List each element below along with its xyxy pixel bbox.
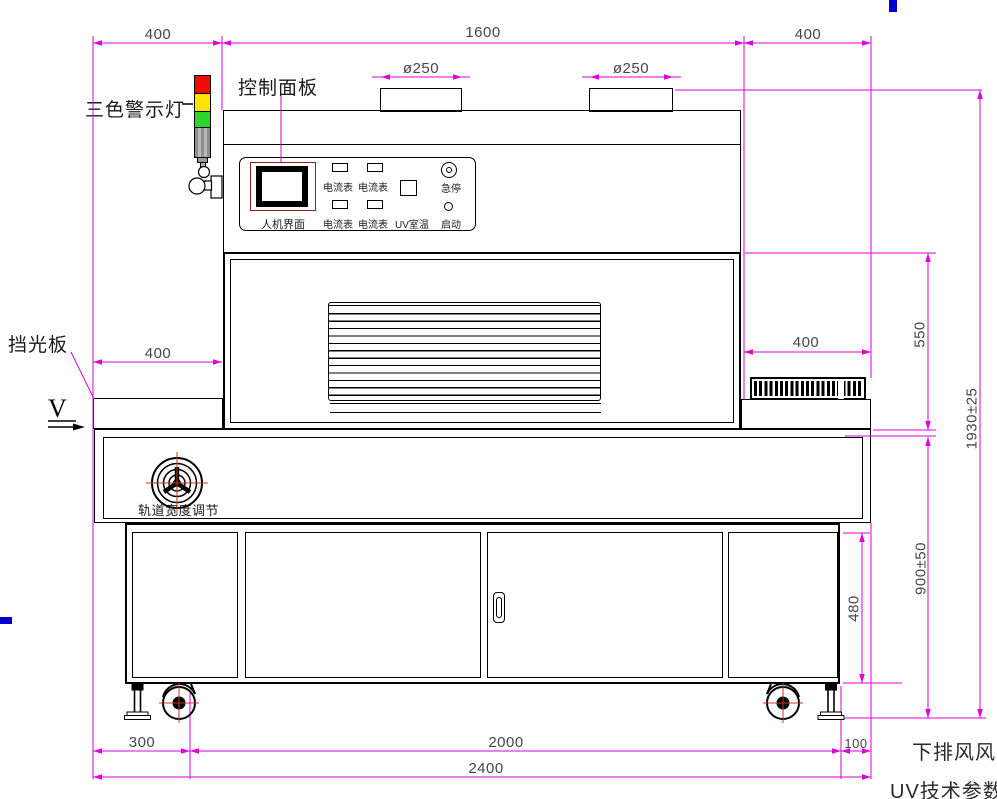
- hmi-screen[interactable]: [256, 166, 308, 207]
- louver-underline-1: [330, 403, 601, 404]
- caster-left: [159, 683, 199, 723]
- uv-temp-display: [400, 180, 417, 196]
- hmi-label: 人机界面: [250, 216, 316, 232]
- blue-mark-left: [0, 617, 12, 624]
- cabinet-door-left: [245, 532, 481, 678]
- ammeter-4: [367, 200, 383, 209]
- estop-label: 急停: [441, 180, 461, 195]
- ammeter-1: [332, 163, 348, 172]
- dim-height-1930: 1930±25: [964, 384, 981, 454]
- dim-bottom-300: 300: [122, 734, 162, 751]
- dim-top-right-400: 400: [788, 26, 828, 43]
- estop-button-inner: [446, 167, 452, 173]
- ammeter-label-1: 电流表: [323, 179, 353, 194]
- ammeter-label-4: 电流表: [358, 216, 388, 231]
- dim-top-left-400: 400: [138, 26, 178, 43]
- dim-cabinet-480: 480: [846, 589, 863, 629]
- dim-duct-right-250: ø250: [605, 60, 657, 77]
- ammeter-2: [367, 163, 383, 172]
- view-arrow-head: [73, 424, 85, 431]
- ammeter-label-2: 电流表: [358, 179, 388, 194]
- warning-light-base: [194, 127, 211, 158]
- louver-underline-2: [330, 412, 601, 413]
- blue-mark-top: [889, 0, 897, 12]
- caster-right: [763, 683, 803, 723]
- warning-light-red: [194, 75, 211, 94]
- cabinet-door-right: [487, 532, 723, 678]
- warning-light-yellow: [194, 93, 211, 112]
- warning-light-label: 三色警示灯: [85, 95, 185, 122]
- leveling-foot-left: [125, 684, 151, 720]
- light-shield-label: 挡光板: [8, 330, 68, 357]
- start-button[interactable]: [444, 202, 453, 211]
- cabinet-panel-right: [728, 532, 838, 678]
- exhaust-duct-right: [589, 88, 673, 112]
- light-shield-left: [93, 398, 223, 429]
- view-direction-marker: V: [48, 394, 67, 424]
- control-panel-label: 控制面板: [238, 73, 318, 100]
- dim-mid-left-400: 400: [138, 345, 178, 362]
- leveling-foot-right: [818, 684, 844, 720]
- track-width-adjust-label: 轨道宽度调节: [138, 500, 219, 519]
- ammeter-3: [332, 200, 348, 209]
- dim-height-900: 900±50: [913, 539, 930, 599]
- note-uv-parameters: UV技术参数: [890, 775, 997, 799]
- lamp-louver-window: [328, 302, 601, 401]
- uv-temp-label: UV室温: [395, 216, 429, 231]
- cabinet-panel-left: [132, 532, 238, 678]
- note-exhaust: 下排风风: [912, 736, 996, 765]
- ammeter-label-3: 电流表: [323, 216, 353, 231]
- dim-height-550: 550: [912, 315, 929, 355]
- exhaust-duct-left: [380, 88, 462, 112]
- dim-bottom-2000: 2000: [478, 734, 534, 751]
- dim-bottom-100: 100: [840, 736, 872, 751]
- warning-light-green: [194, 111, 211, 128]
- dim-duct-left-250: ø250: [395, 60, 447, 77]
- dim-top-1600: 1600: [455, 24, 511, 41]
- start-label: 启动: [441, 216, 461, 231]
- conveyor-overhang-right: [741, 399, 871, 429]
- dim-mid-right-400: 400: [786, 334, 826, 351]
- machine-top-cap: [223, 110, 741, 145]
- door-handle-inner: [496, 597, 502, 618]
- warning-light-stem: [200, 162, 206, 168]
- uv-machine-front-view-drawing: 人机界面 电流表 电流表 电流表 电流表 UV室温 急停 启动 三色警示灯 控制…: [0, 0, 997, 799]
- dim-bottom-2400: 2400: [458, 760, 514, 777]
- vent-grille: [750, 377, 866, 400]
